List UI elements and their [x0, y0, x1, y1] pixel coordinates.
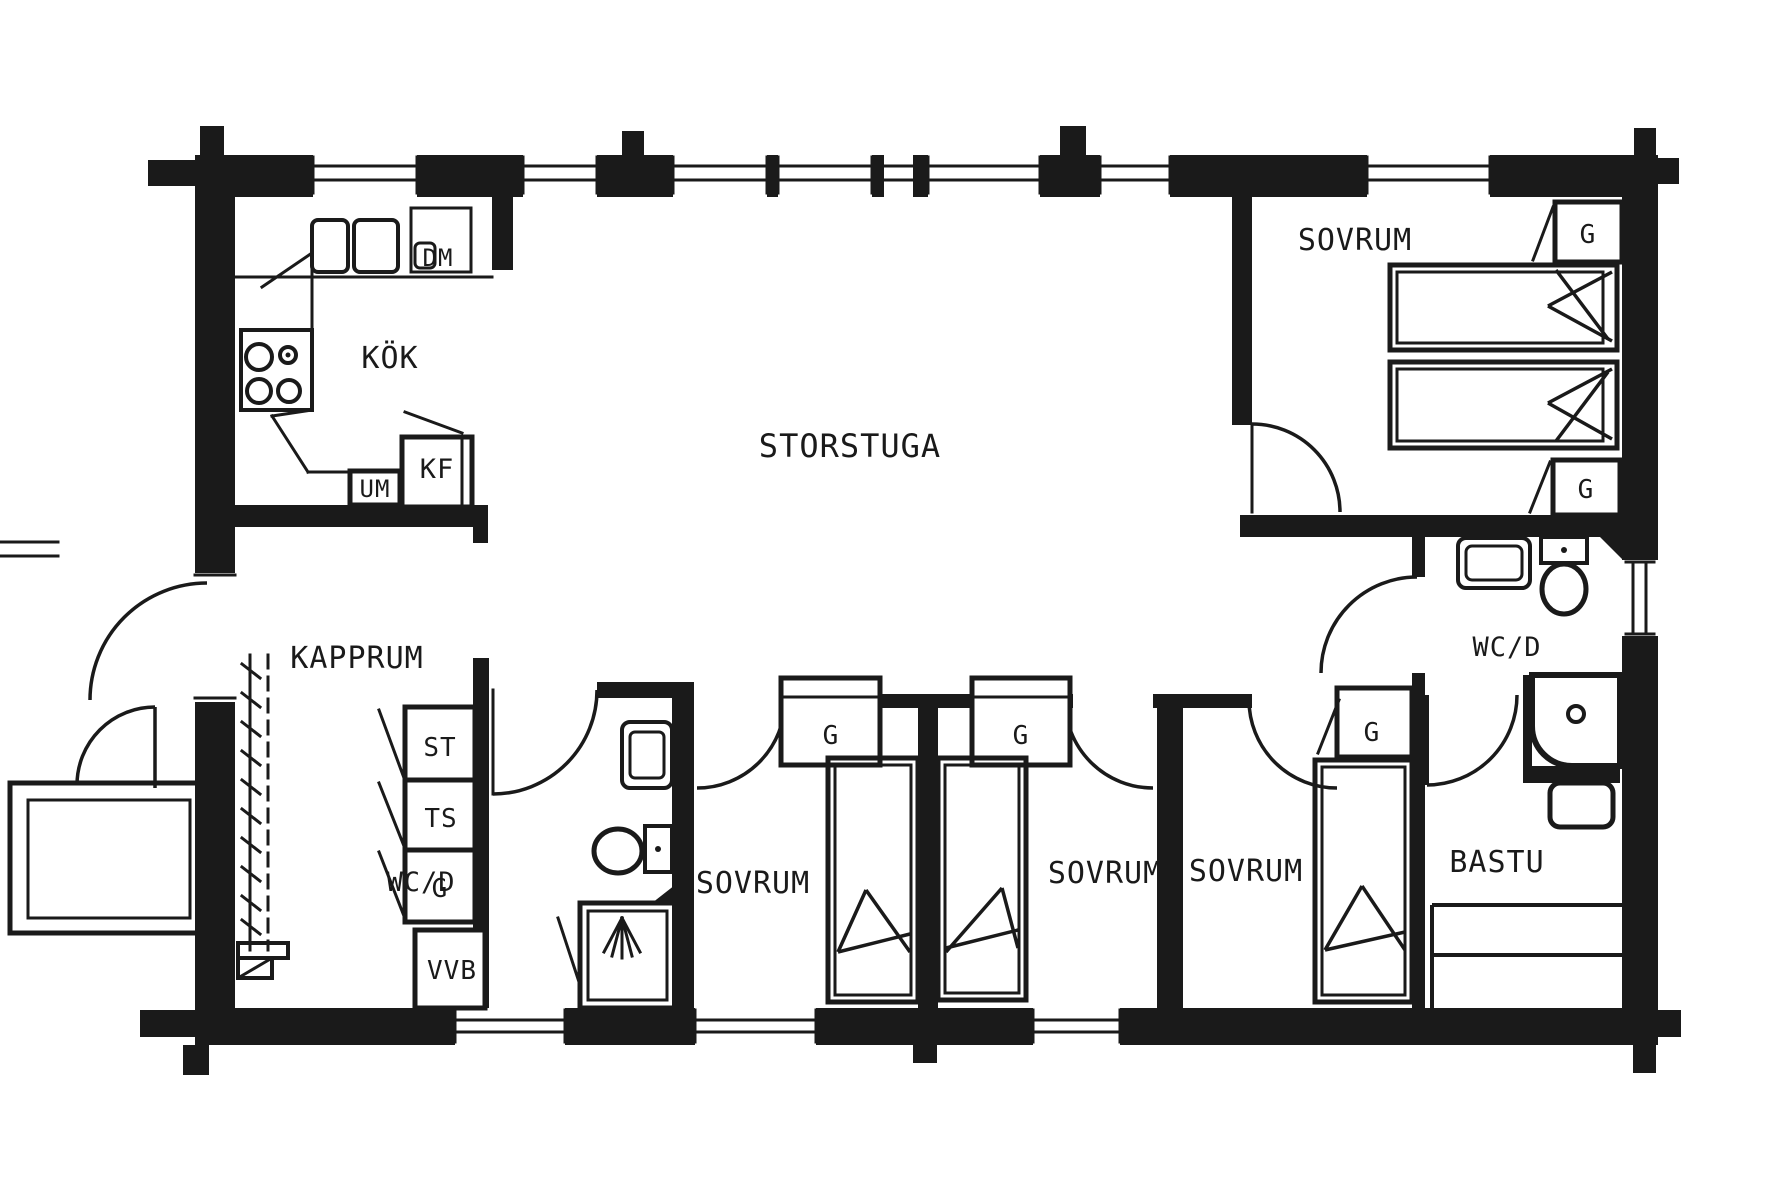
sauna-benches	[1432, 905, 1622, 1008]
door-swing-entrance	[90, 583, 207, 700]
window	[455, 1004, 565, 1049]
chimney-stub	[1060, 126, 1086, 157]
corner-stub	[1634, 128, 1656, 155]
label-closet-g: G	[1578, 475, 1595, 505]
closet-door-swing	[1530, 462, 1550, 512]
door-swing-wcd-right	[1321, 577, 1417, 673]
wall-stub	[473, 527, 488, 543]
bed	[938, 758, 1026, 1000]
shower	[558, 885, 675, 1008]
door-swing-bedroom2	[1065, 700, 1153, 788]
fridge-swing	[405, 412, 462, 433]
counter-edge	[272, 416, 308, 472]
wall-bedroom1-2	[918, 708, 938, 1008]
door-swing-bedroom-topright	[1252, 424, 1340, 512]
corner-stub	[200, 126, 224, 155]
window	[695, 1004, 816, 1049]
window	[523, 150, 597, 202]
label-closet-g: G	[1580, 220, 1597, 250]
wall-stub	[913, 1045, 937, 1063]
sauna-stove	[1550, 783, 1613, 827]
porch-deck	[10, 783, 205, 933]
counter-corner	[262, 253, 312, 287]
wall-bedroom-topright-west	[1232, 197, 1252, 425]
shower-door	[558, 918, 580, 985]
toilet	[1541, 537, 1587, 614]
label-washer-um: UM	[360, 475, 391, 503]
door-swing-bedroom3	[1249, 700, 1337, 788]
wall-kitchen-stub	[492, 197, 513, 270]
wall-wcd-right-west	[1412, 537, 1425, 577]
window	[673, 150, 767, 202]
bench-diagonal	[238, 958, 272, 978]
sink-basin	[630, 732, 664, 778]
window	[928, 150, 1040, 202]
room-label-storstuga: STORSTUGA	[759, 427, 941, 465]
window	[884, 150, 913, 202]
door-swing-bedroom1	[697, 700, 785, 788]
window	[1620, 560, 1660, 636]
floor-plan-drawing: STORSTUGA KÖK KAPPRUM SOVRUM SOVRUM SOVR…	[0, 0, 1770, 1181]
door-swing-porch	[77, 707, 155, 785]
room-label-bastu: BASTU	[1449, 845, 1544, 880]
bastu-fixtures	[1432, 783, 1622, 1008]
room-label-bedroom1: SOVRUM	[696, 866, 810, 901]
shower	[1532, 675, 1620, 766]
label-closet-g: G	[1013, 721, 1030, 751]
wall-wcd-top	[597, 682, 694, 698]
room-label-bedroom-topright: SOVRUM	[1298, 223, 1412, 258]
window	[1100, 150, 1170, 202]
porch-deck-inner	[28, 800, 190, 918]
entrance-opening	[191, 573, 239, 702]
window	[1367, 150, 1490, 202]
chimney-stub	[622, 131, 644, 157]
room-label-kitchen: KÖK	[361, 340, 418, 376]
room-label-bedroom3: SOVRUM	[1189, 854, 1303, 889]
label-closet-g: G	[1364, 718, 1381, 748]
corner-stub	[1655, 158, 1679, 184]
bed	[1390, 362, 1617, 448]
wall-bottom	[195, 1008, 1655, 1045]
wall-bedroom3-north	[1183, 694, 1252, 708]
corner-stub	[148, 160, 195, 186]
label-dishwasher-dm: DM	[423, 244, 454, 272]
stove-burners-icon	[241, 330, 312, 410]
toilet	[594, 826, 672, 873]
label-closet-ts: TS	[424, 804, 457, 834]
corner-stub	[1655, 1010, 1681, 1037]
wcd-left-fixtures	[558, 722, 675, 1008]
middle-bedrooms	[781, 678, 1412, 1002]
closet-door-swing	[379, 783, 404, 846]
wall-bedroom2-3	[1157, 694, 1183, 1008]
window	[1033, 1004, 1120, 1049]
sink-basin	[312, 220, 348, 272]
window	[778, 150, 872, 202]
label-closet-st: ST	[423, 733, 456, 763]
room-label-wcd-right: WC/D	[1472, 632, 1541, 663]
bed	[1390, 265, 1617, 350]
sink-basin	[354, 220, 398, 272]
sink-basin	[1466, 546, 1522, 580]
bench	[238, 943, 288, 958]
door-swing-wcd-left	[493, 690, 597, 794]
room-label-kapprum: KAPPRUM	[290, 641, 423, 676]
room-label-bedroom2: SOVRUM	[1048, 856, 1162, 891]
shower-spray-icon	[604, 918, 640, 958]
bed	[1315, 760, 1412, 1002]
label-vvb: VVB	[427, 956, 477, 986]
label-fridge-kf: KF	[420, 454, 455, 485]
closet-door-swing	[1533, 207, 1553, 260]
porch	[0, 542, 205, 933]
window	[313, 150, 417, 202]
wall-corner-detail	[1600, 537, 1622, 559]
corner-stub	[140, 1010, 195, 1037]
door-swing-bastu	[1427, 695, 1517, 785]
bed	[828, 758, 918, 1002]
corner-stub	[1633, 1045, 1656, 1073]
wall-bedroom-topright-south	[1240, 515, 1622, 537]
corner-stub	[183, 1045, 209, 1075]
label-closet-g: G	[823, 721, 840, 751]
label-closet-g: G	[432, 874, 449, 904]
closet-door-swing	[379, 710, 404, 778]
floor-plan-page: STORSTUGA KÖK KAPPRUM SOVRUM SOVRUM SOVR…	[0, 0, 1770, 1181]
